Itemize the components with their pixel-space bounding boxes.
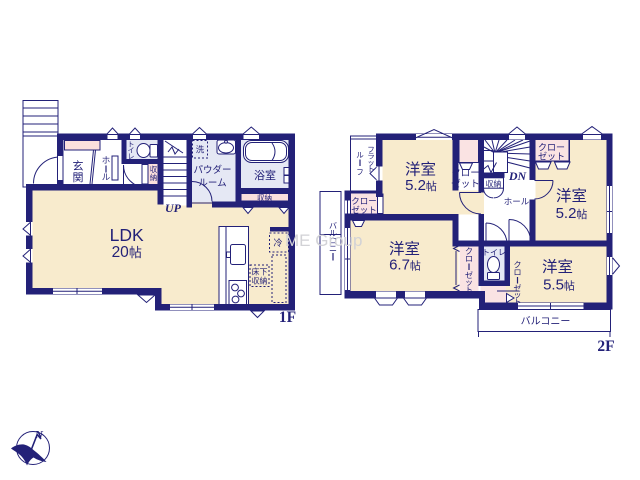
svg-text:洋室: 洋室 [405,161,436,179]
svg-text:ルーム: ルーム [198,178,226,189]
svg-text:フ: フ [356,168,364,177]
svg-text:収納: 収納 [257,193,272,203]
svg-text:関: 関 [73,171,84,184]
svg-text:洗: 洗 [196,145,205,155]
svg-text:洋室: 洋室 [556,187,587,205]
svg-text:玄: 玄 [73,159,84,173]
svg-text:1F: 1F [279,309,296,326]
svg-text:浴室: 浴室 [254,168,276,182]
svg-text:ゼット: ゼット [538,151,565,162]
svg-text:パウダー: パウダー [193,164,231,176]
svg-text:DN: DN [508,169,528,183]
svg-text:バルコニー: バルコニー [521,316,571,328]
svg-text:ロ: ロ [465,255,473,264]
svg-text:床下: 床下 [252,267,268,277]
svg-text:納: 納 [150,172,158,182]
svg-text:ゼット: ゼット [351,205,377,215]
svg-text:2F: 2F [597,338,614,355]
svg-text:ME Group: ME Group [285,231,362,250]
svg-text:ロ: ロ [514,268,522,277]
svg-text:ル: ル [356,151,364,160]
svg-text:収納: 収納 [486,179,502,189]
svg-text:20帖: 20帖 [112,244,142,261]
svg-text:洋室: 洋室 [389,240,420,258]
svg-text:ホ: ホ [102,155,111,165]
svg-text:LDK: LDK [110,225,144,245]
svg-text:トイレ: トイレ [482,248,506,257]
svg-text:N: N [34,429,44,441]
svg-text:レ: レ [128,154,135,161]
svg-text:UP: UP [165,201,182,215]
svg-text:ホール: ホール [504,197,530,207]
svg-text:冷: 冷 [273,237,282,248]
svg-text:ル: ル [102,172,111,182]
svg-text:洋室: 洋室 [542,258,573,276]
svg-text:収納: 収納 [252,276,268,286]
